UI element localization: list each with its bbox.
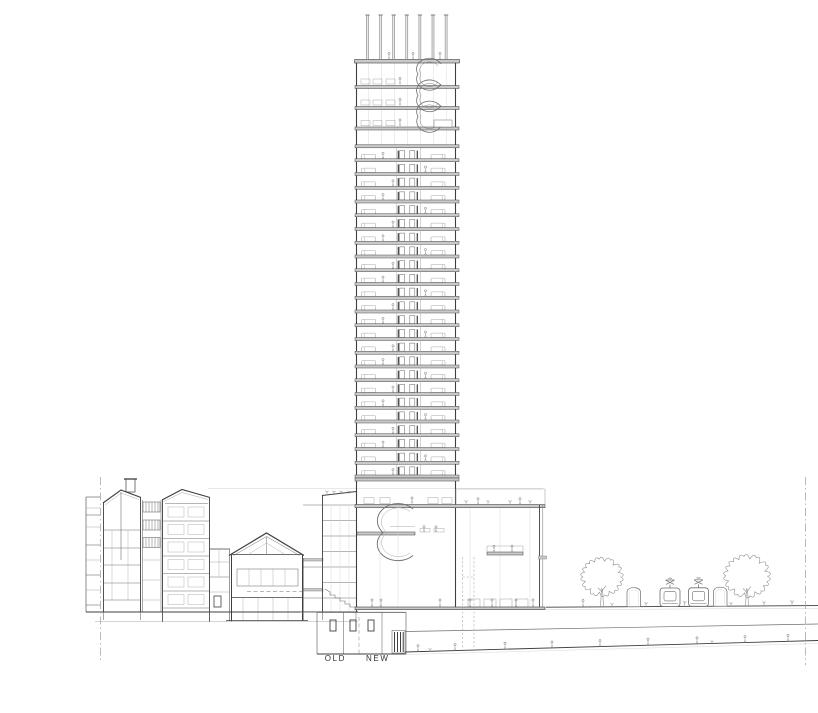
person-icon <box>491 599 493 607</box>
person-icon <box>424 207 426 214</box>
core-door <box>400 412 405 420</box>
plant-icon <box>790 600 794 606</box>
bed <box>362 292 376 296</box>
typical-floor <box>355 354 459 368</box>
typical-floor <box>355 382 459 396</box>
core-door <box>410 371 415 379</box>
core-door <box>400 439 405 447</box>
pergola-column <box>378 15 382 60</box>
typical-floor <box>355 189 459 203</box>
person-icon <box>388 52 390 59</box>
bed <box>431 471 445 475</box>
typical-floor <box>355 217 459 231</box>
core-door <box>410 151 415 159</box>
typical-floor <box>355 244 459 258</box>
core-door <box>410 164 415 172</box>
stair-landing <box>434 120 452 127</box>
bed <box>431 457 445 461</box>
core-door <box>410 357 415 365</box>
pergola-column <box>431 15 435 60</box>
hatched-window-band <box>143 502 160 512</box>
typical-floors <box>355 148 459 478</box>
person-icon <box>399 98 401 105</box>
typical-floor <box>355 341 459 355</box>
person-icon <box>439 52 441 59</box>
street-people <box>582 599 584 607</box>
person-icon <box>477 498 479 505</box>
plant-icon <box>762 601 766 606</box>
floor-slab <box>355 283 459 286</box>
tram-icon <box>660 578 680 606</box>
person-icon <box>382 235 384 242</box>
counter <box>484 599 496 607</box>
core-door <box>400 288 405 296</box>
bed <box>431 196 445 200</box>
clerestory-band <box>237 569 298 586</box>
person-icon <box>392 221 394 228</box>
floor-slab <box>355 255 459 258</box>
upper-mullions <box>369 63 447 148</box>
bed <box>362 333 376 337</box>
person-icon <box>392 180 394 187</box>
floor-slab <box>355 186 459 189</box>
hatched-window-band <box>143 538 160 548</box>
desk <box>442 498 452 504</box>
basement <box>300 612 406 654</box>
bed <box>431 443 445 447</box>
loggia-stack <box>143 500 162 612</box>
floor-slab <box>355 461 459 464</box>
core-door <box>410 219 415 227</box>
floor-slab <box>355 475 459 478</box>
core-door <box>400 206 405 214</box>
person-icon <box>399 77 401 84</box>
person-icon <box>411 497 413 504</box>
core-door <box>400 357 405 365</box>
typical-floor <box>355 231 459 245</box>
tree-icon <box>724 554 771 606</box>
core-door <box>400 426 405 434</box>
person-icon <box>382 317 384 324</box>
bed <box>362 306 376 310</box>
bed <box>431 237 445 241</box>
bed <box>362 168 376 172</box>
core-door <box>400 316 405 324</box>
bed <box>362 416 376 420</box>
sky-lobby-floors <box>355 58 459 148</box>
bed <box>362 429 376 433</box>
podium-top-slab <box>355 478 459 481</box>
core-door <box>400 178 405 186</box>
person-icon <box>382 400 384 407</box>
person-icon <box>392 262 394 269</box>
roof-pergola <box>365 15 448 60</box>
bed <box>431 154 445 158</box>
street-ground-line <box>546 606 818 608</box>
lobby-counters <box>468 599 528 607</box>
bed <box>431 416 445 420</box>
bed <box>431 306 445 310</box>
floor-slab <box>355 159 459 162</box>
person-icon <box>599 640 601 647</box>
tunnel-floor <box>405 641 818 653</box>
typical-floor <box>355 286 459 300</box>
pantograph <box>666 578 675 588</box>
bed <box>362 361 376 365</box>
floor-slab <box>355 296 459 299</box>
person-icon <box>392 427 394 434</box>
bed <box>431 319 445 323</box>
pergola-column <box>444 15 448 60</box>
plant-icon <box>644 602 648 607</box>
core-door <box>400 192 405 200</box>
bed <box>362 251 376 255</box>
furniture <box>373 100 382 105</box>
typical-floor <box>355 272 459 286</box>
core-door <box>400 384 405 392</box>
person-icon <box>371 599 373 607</box>
typical-floor <box>355 423 459 437</box>
counter <box>516 599 528 607</box>
pergola-column <box>365 15 369 60</box>
person-icon <box>532 599 534 607</box>
core-door <box>400 467 405 475</box>
section-drawing: OLD NEW <box>0 0 818 713</box>
bed <box>431 374 445 378</box>
core-door <box>400 343 405 351</box>
core-door <box>400 371 405 379</box>
floor-slab <box>355 86 459 89</box>
person-icon <box>435 526 437 532</box>
curb-line <box>546 608 818 610</box>
bed <box>431 264 445 268</box>
old-town-buildings <box>86 479 358 622</box>
pergola-column <box>405 15 409 60</box>
core-door <box>410 233 415 241</box>
core-door <box>410 206 415 214</box>
core-door <box>410 178 415 186</box>
core-door <box>400 164 405 172</box>
hatched-pier <box>392 631 405 654</box>
floor-slab <box>355 434 459 437</box>
core-door <box>400 329 405 337</box>
plant-icon <box>464 500 468 504</box>
person-icon <box>424 372 426 379</box>
furniture <box>386 121 395 126</box>
hatched-window-band <box>143 520 160 530</box>
person-icon <box>551 641 553 648</box>
typical-floor <box>355 396 459 410</box>
bed <box>431 292 445 296</box>
bed <box>431 223 445 227</box>
core-door <box>400 453 405 461</box>
person-icon <box>382 359 384 366</box>
tunnel-ceiling <box>405 624 818 632</box>
bed <box>431 429 445 433</box>
core-door <box>410 247 415 255</box>
person-icon <box>412 52 414 59</box>
bed <box>431 333 445 337</box>
person-icon <box>424 414 426 421</box>
core-door <box>410 412 415 420</box>
plant-icon <box>683 601 687 607</box>
annex-roof-slab <box>355 505 545 508</box>
floor-slab <box>355 406 459 409</box>
bed <box>431 209 445 213</box>
plant-icon <box>729 602 733 606</box>
connector-building <box>210 549 230 621</box>
person-icon <box>424 249 426 256</box>
typical-floor <box>355 299 459 313</box>
roof-terrace-slab <box>355 60 460 64</box>
counter <box>500 599 512 607</box>
new-label: NEW <box>366 654 389 663</box>
core-door <box>410 439 415 447</box>
bed <box>362 402 376 406</box>
basement-door <box>368 620 374 631</box>
bed <box>362 264 376 268</box>
typical-floor <box>355 409 459 423</box>
core-door <box>410 316 415 324</box>
bed <box>431 361 445 365</box>
person-icon <box>382 276 384 283</box>
plant-icon <box>528 500 532 504</box>
kiosk <box>714 587 728 606</box>
person-icon <box>504 642 506 649</box>
annex-roof-terrace <box>464 498 532 505</box>
person-icon <box>417 645 419 652</box>
drawing-canvas: OLD NEW <box>0 0 818 713</box>
floor-slab <box>355 310 459 313</box>
floor-slab <box>355 173 459 176</box>
tower <box>355 15 460 612</box>
desk <box>380 498 390 504</box>
bed <box>362 154 376 158</box>
core-door <box>400 274 405 282</box>
person-icon <box>439 599 441 607</box>
typical-floor <box>355 451 459 465</box>
person-icon <box>382 194 384 201</box>
person-icon <box>392 469 394 476</box>
person-icon <box>392 386 394 393</box>
floor-slab <box>355 338 459 341</box>
floor-slab <box>355 393 459 396</box>
bed <box>431 388 445 392</box>
person-icon <box>399 119 401 126</box>
bed <box>362 457 376 461</box>
core-door <box>410 467 415 475</box>
sky-lobby-furniture <box>361 77 401 125</box>
bed <box>431 278 445 282</box>
pantograph <box>694 578 703 588</box>
core-door <box>410 274 415 282</box>
office-desks <box>364 497 452 504</box>
furniture <box>373 79 382 84</box>
core-door <box>400 219 405 227</box>
core-door <box>400 151 405 159</box>
core-door <box>410 192 415 200</box>
desk <box>428 498 438 504</box>
chimney <box>126 479 135 492</box>
bed <box>431 182 445 186</box>
building-c <box>303 492 357 622</box>
floor-slab <box>355 324 459 327</box>
furniture <box>373 121 382 126</box>
core-door <box>410 398 415 406</box>
core-door <box>400 233 405 241</box>
person-icon <box>424 166 426 173</box>
tree-icon <box>581 557 624 607</box>
tram-icon <box>689 578 709 606</box>
bed <box>362 182 376 186</box>
bed <box>431 251 445 255</box>
floor-slab <box>355 145 459 148</box>
bed <box>362 196 376 200</box>
street <box>325 491 818 610</box>
floor-slab <box>355 200 459 203</box>
typical-floor <box>355 162 459 176</box>
bed <box>362 443 376 447</box>
person-icon <box>424 455 426 462</box>
typical-floor <box>355 327 459 341</box>
gable-hall <box>226 533 308 621</box>
bed <box>362 347 376 351</box>
floor-slab <box>355 107 459 110</box>
plant-icon <box>486 500 490 504</box>
floor-slab <box>355 379 459 382</box>
typical-floor <box>355 437 459 451</box>
core-door <box>400 261 405 269</box>
plant-icon <box>508 500 512 504</box>
person-icon <box>696 637 698 644</box>
building-fragment-left <box>86 497 101 612</box>
underground-passage <box>405 624 818 655</box>
core-door <box>400 302 405 310</box>
floor-slab <box>355 214 459 217</box>
typical-floor <box>355 464 459 478</box>
desk <box>364 498 374 504</box>
floor-slab <box>355 269 459 272</box>
core-door <box>410 302 415 310</box>
core-door <box>410 288 415 296</box>
bed <box>431 168 445 172</box>
core-door <box>410 384 415 392</box>
old-label: OLD <box>325 654 346 663</box>
bed <box>362 278 376 282</box>
bed <box>431 347 445 351</box>
floor-slab <box>355 365 459 368</box>
person-icon <box>382 441 384 448</box>
bed <box>362 319 376 323</box>
glass-annex <box>470 505 547 607</box>
person-icon <box>424 290 426 297</box>
pergola-column <box>392 15 396 60</box>
bed <box>362 471 376 475</box>
bed <box>431 402 445 406</box>
floor-slab <box>355 351 459 354</box>
plant-icon <box>325 491 329 494</box>
mezzanine-bridge <box>487 552 523 555</box>
floor-slab <box>355 228 459 231</box>
person-icon <box>454 644 456 651</box>
core-door <box>400 247 405 255</box>
bed <box>362 388 376 392</box>
core-door <box>410 426 415 434</box>
typical-floor <box>355 203 459 217</box>
person-icon <box>582 599 584 607</box>
bed <box>362 209 376 213</box>
bed <box>362 223 376 227</box>
floor-slab <box>355 241 459 244</box>
typical-floor <box>355 313 459 327</box>
core-door <box>410 453 415 461</box>
podium <box>355 478 547 610</box>
person-icon <box>787 634 789 641</box>
person-icon <box>424 331 426 338</box>
core-door <box>410 343 415 351</box>
building-a <box>103 479 141 612</box>
typical-floor <box>355 368 459 382</box>
ground-slab <box>355 607 545 610</box>
bed <box>362 237 376 241</box>
bed <box>362 374 376 378</box>
building-b <box>162 490 210 623</box>
person-icon <box>392 345 394 352</box>
person-icon <box>744 635 746 642</box>
person-icon <box>423 526 425 532</box>
person-icon <box>380 599 382 607</box>
floor-slab <box>355 127 459 130</box>
furniture <box>386 100 395 105</box>
typical-floor <box>355 176 459 190</box>
core-door <box>410 261 415 269</box>
person-icon <box>519 498 521 505</box>
person-icon <box>382 152 384 159</box>
typical-floor <box>355 258 459 272</box>
core-door <box>400 398 405 406</box>
person-icon <box>647 638 649 645</box>
person-icon <box>392 304 394 311</box>
lobby-people <box>371 526 534 607</box>
pergola-column <box>418 15 422 60</box>
courtyard-bridges <box>303 559 323 592</box>
plant-icon <box>610 603 614 607</box>
furniture <box>386 79 395 84</box>
floor-slab <box>355 420 459 423</box>
floor-slab <box>355 448 459 451</box>
core-door <box>410 329 415 337</box>
typical-floor <box>355 148 459 162</box>
kiosk <box>627 588 641 607</box>
